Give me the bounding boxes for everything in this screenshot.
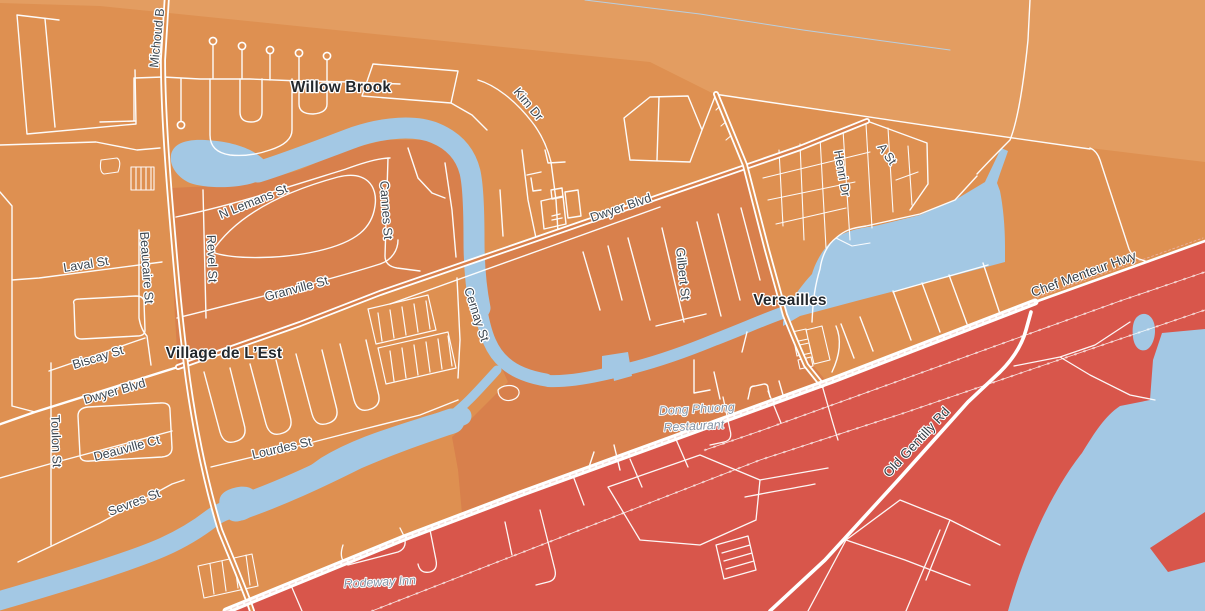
svg-text:Versailles: Versailles [753,292,827,309]
svg-text:Willow Brook: Willow Brook [291,79,392,96]
svg-text:Village de L’Est: Village de L’Est [166,345,283,362]
svg-text:Toulon St: Toulon St [48,415,64,468]
svg-text:Revel St: Revel St [204,235,220,284]
